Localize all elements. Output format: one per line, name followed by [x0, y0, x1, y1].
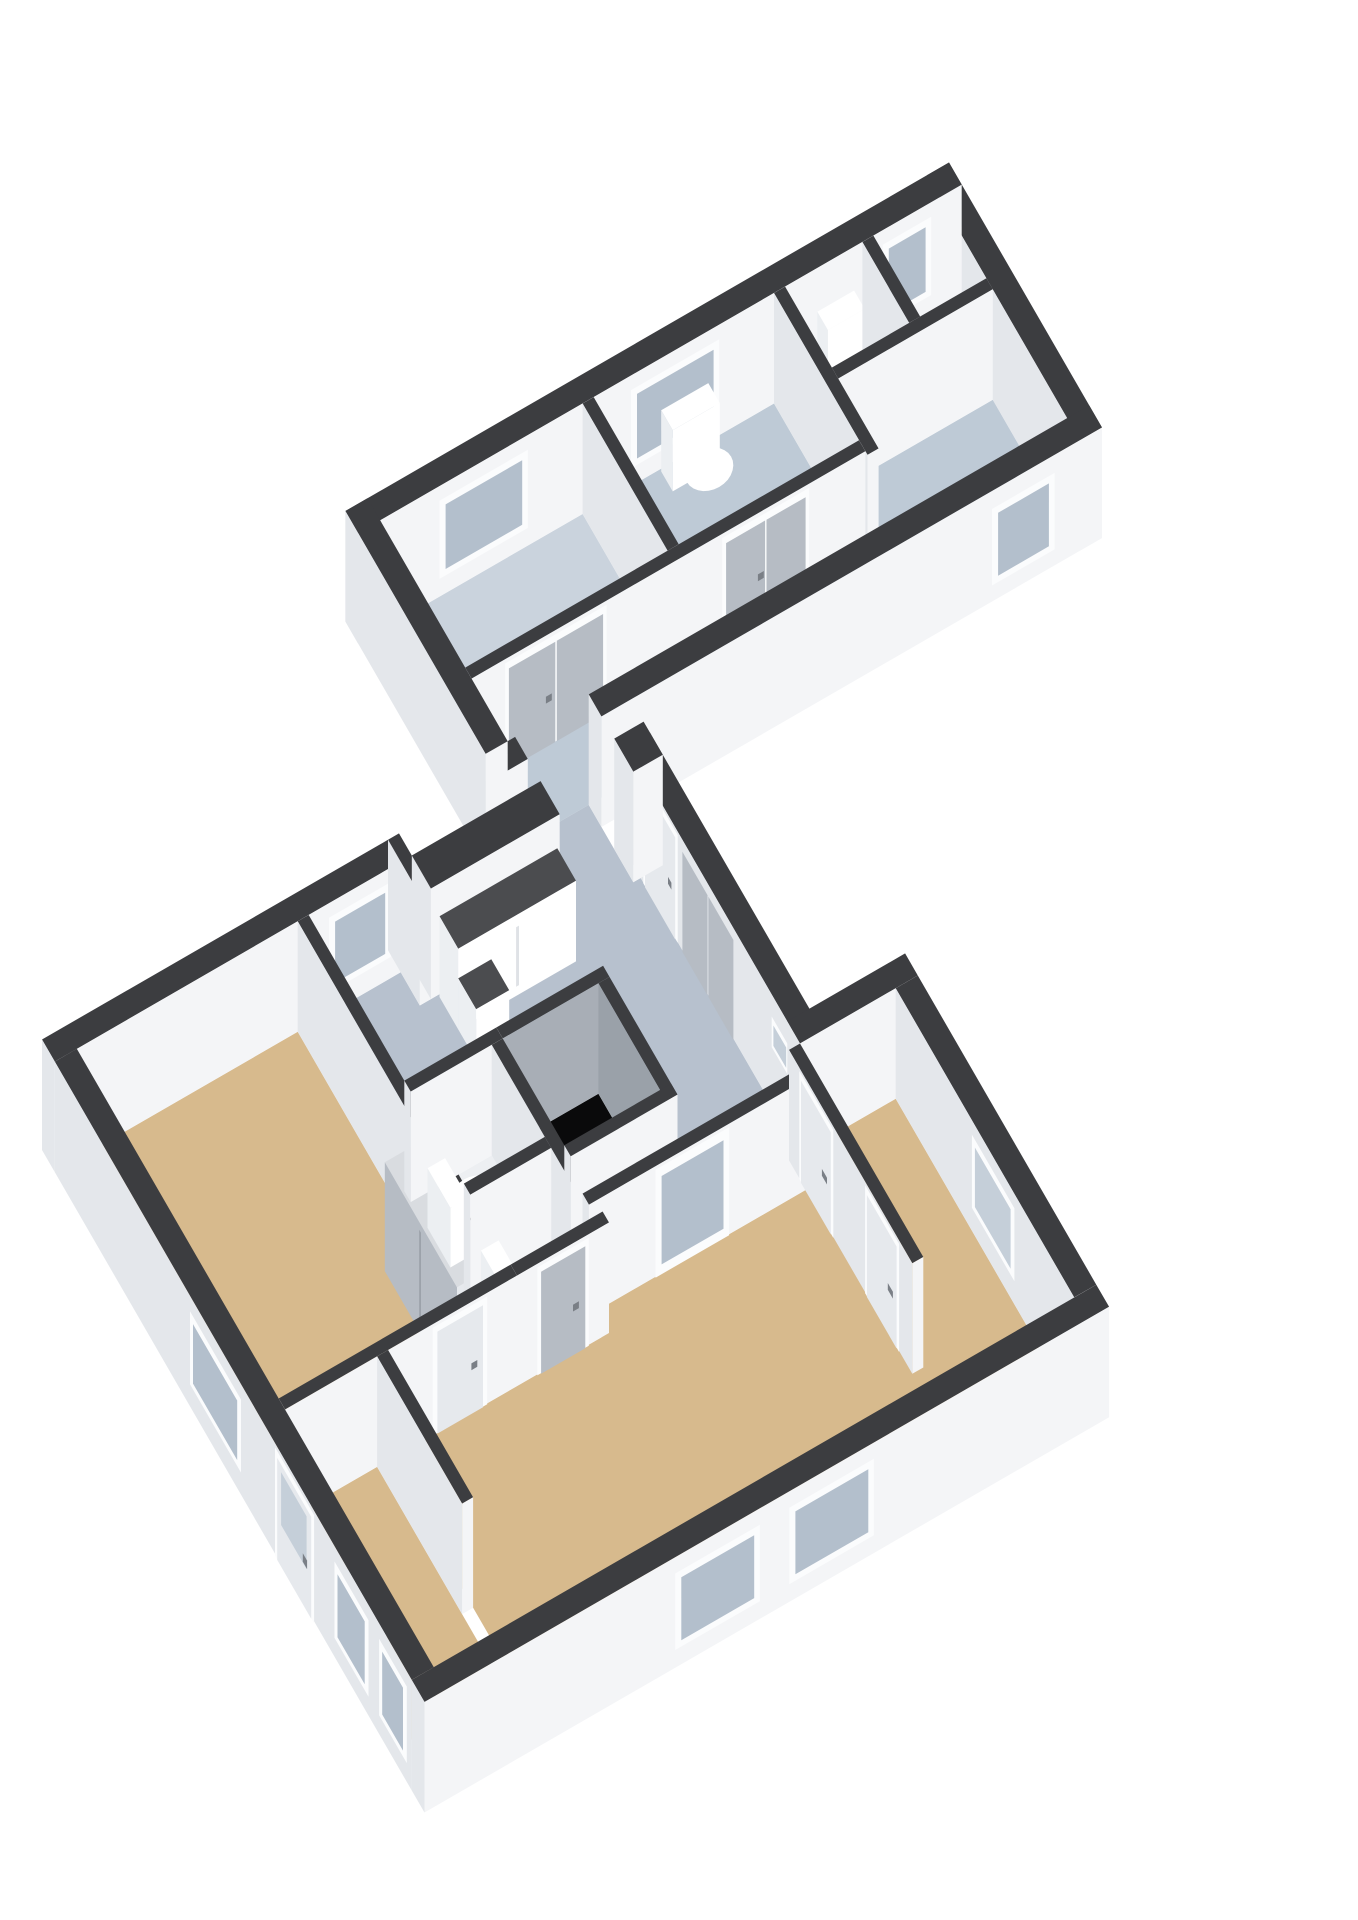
- main-south-wall-west-face: [412, 1680, 425, 1813]
- junction-east-wall-south-face: [633, 755, 663, 883]
- main-north-wall-west-face: [42, 1040, 55, 1173]
- living-east-door-wall-south-face: [912, 1257, 923, 1374]
- toilet-bath-divider-wall-west-face: [464, 1184, 470, 1306]
- wardrobe-door-seam: [419, 1230, 421, 1332]
- bath-cluster-north-wall-west-face: [404, 1081, 410, 1203]
- wing-south-wall-east-west-face: [589, 694, 602, 827]
- floor-plan-3d-svg: [0, 0, 1358, 1920]
- entry-stub-wall-south-face: [462, 1497, 473, 1614]
- floor-plan-stage: [0, 0, 1358, 1920]
- kitchen-counter-seam: [516, 926, 519, 987]
